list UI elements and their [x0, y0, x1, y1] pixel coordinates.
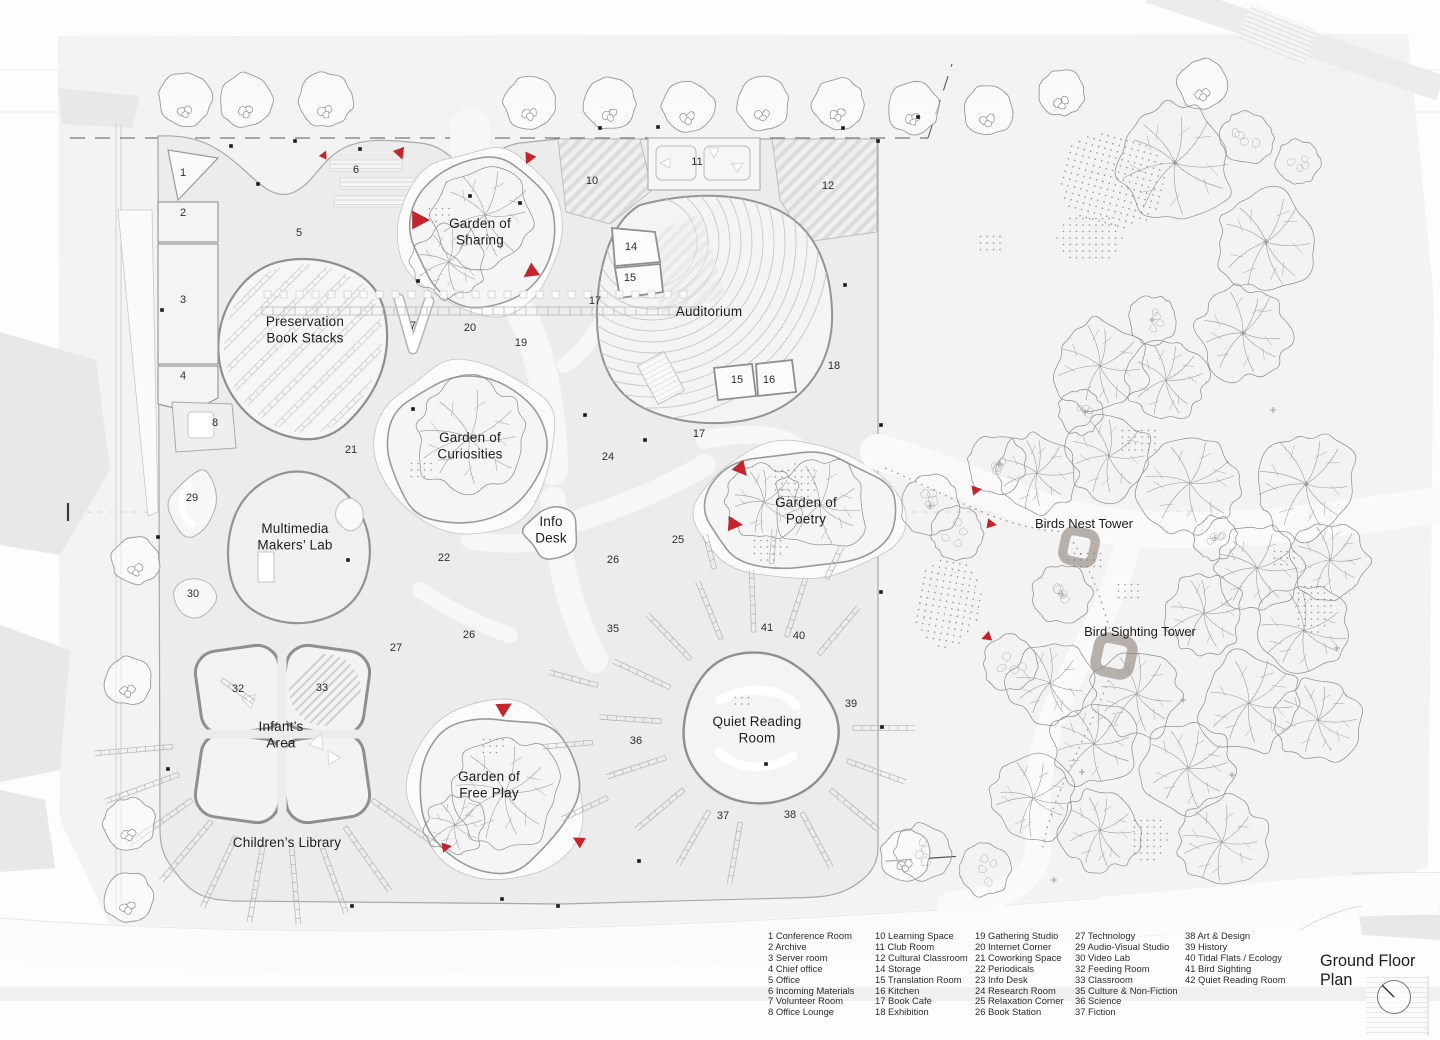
- boundary-dot: [637, 859, 641, 863]
- boundary-dot: [166, 767, 170, 771]
- area-label-preservation-book-stacks: PreservationBook Stacks: [266, 314, 344, 346]
- room-number-40: 40: [793, 630, 805, 642]
- tower-label: Bird Sighting Tower: [1084, 624, 1196, 639]
- boundary-dot: [160, 308, 164, 312]
- room-number-3: 3: [180, 294, 186, 306]
- boundary-dot: [350, 904, 354, 908]
- boundary-dot: [843, 283, 847, 287]
- boundary-dot: [880, 725, 884, 729]
- room-number-14: 14: [625, 241, 637, 253]
- room-number-7: 7: [410, 320, 416, 332]
- room-number-29: 29: [186, 492, 198, 504]
- room-number-22: 22: [438, 552, 450, 564]
- room-number-15: 15: [731, 374, 743, 386]
- boundary-dot: [656, 125, 660, 129]
- room-number-26: 26: [463, 629, 475, 641]
- room-number-5: 5: [296, 227, 302, 239]
- boundary-dot: [556, 904, 560, 908]
- room-number-32: 32: [232, 683, 244, 695]
- room-number-4: 4: [180, 370, 186, 382]
- boundary-dot: [916, 115, 920, 119]
- area-label-garden-of-curiosities: Garden ofCuriosities: [437, 430, 502, 462]
- boundary-dot: [583, 413, 587, 417]
- room-number-12: 12: [822, 180, 834, 192]
- boundary-dot: [841, 126, 845, 130]
- room-number-20: 20: [464, 322, 476, 334]
- boundary-dot: [468, 194, 472, 198]
- boundary-dot: [500, 897, 504, 901]
- boundary-dot: [229, 144, 233, 148]
- room-number-27: 27: [390, 642, 402, 654]
- tower-label: Birds Nest Tower: [1035, 516, 1134, 531]
- room-number-41: 41: [761, 622, 773, 634]
- area-label-info-desk: InfoDesk: [535, 514, 567, 546]
- room-number-37: 37: [717, 810, 729, 822]
- room-number-17: 17: [589, 295, 601, 307]
- boundary-dot: [598, 126, 602, 130]
- boundary-dot: [764, 762, 768, 766]
- boundary-dot: [879, 590, 883, 594]
- boundary-dot: [518, 201, 522, 205]
- boundary-dot: [256, 182, 260, 186]
- room-number-30: 30: [187, 588, 199, 600]
- room-number-38: 38: [784, 809, 796, 821]
- boundary-dot: [358, 147, 362, 151]
- boundary-dot: [156, 535, 160, 539]
- room-number-1: 1: [180, 167, 186, 179]
- room-number-8: 8: [212, 417, 218, 429]
- room-number-15: 15: [624, 272, 636, 284]
- room-number-6: 6: [353, 164, 359, 176]
- boundary-dot: [346, 558, 350, 562]
- area-label-garden-of-free-play: Garden ofFree Play: [458, 769, 520, 801]
- boundary-dot: [293, 139, 297, 143]
- room-number-33: 33: [316, 682, 328, 694]
- room-number-17: 17: [693, 428, 705, 440]
- area-label-childrens-library: Children’s Library: [233, 835, 341, 850]
- room-number-18: 18: [828, 360, 840, 372]
- room-number-10: 10: [586, 175, 598, 187]
- room-number-21: 21: [345, 444, 357, 456]
- boundary-dot: [411, 407, 415, 411]
- area-label-auditorium: Auditorium: [676, 304, 743, 319]
- area-label-garden-of-sharing: Garden ofSharing: [449, 216, 511, 248]
- plan-title: Ground Floor Plan: [1320, 952, 1440, 990]
- room-number-26: 26: [607, 554, 619, 566]
- street-tree-icon: [104, 873, 154, 922]
- area-label-multimedia-makers-lab: MultimediaMakers’ Lab: [257, 521, 332, 553]
- room-number-25: 25: [672, 534, 684, 546]
- room-number-39: 39: [845, 698, 857, 710]
- room-number-36: 36: [630, 735, 642, 747]
- room-number-24: 24: [602, 451, 614, 463]
- boundary-dot: [879, 423, 883, 427]
- room-number-19: 19: [515, 337, 527, 349]
- street-tree-icon: [964, 86, 1013, 135]
- boundary-dot: [416, 279, 420, 283]
- room-number-2: 2: [180, 207, 186, 219]
- room-number-35: 35: [607, 623, 619, 635]
- room-number-11: 11: [691, 156, 702, 168]
- plan-svg: PreservationBook StacksGarden ofSharingA…: [0, 0, 1440, 1040]
- ground-floor-plan-drawing: PreservationBook StacksGarden ofSharingA…: [0, 0, 1440, 1040]
- room-number-16: 16: [763, 374, 775, 386]
- boundary-dot: [643, 438, 647, 442]
- boundary-dot: [876, 139, 880, 143]
